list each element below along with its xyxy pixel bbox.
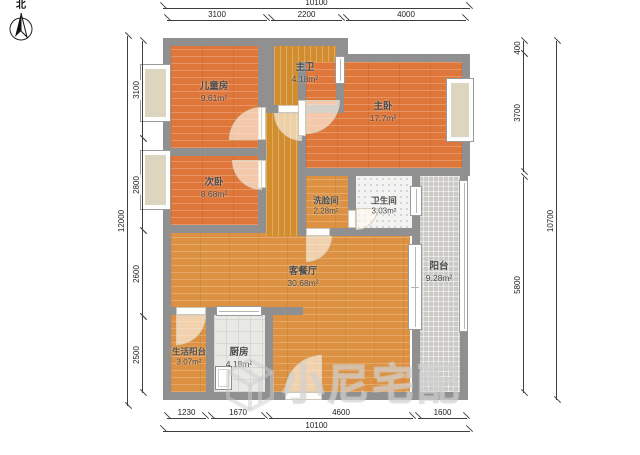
room-balcony[interactable] xyxy=(418,176,460,392)
floorplan-canvas: 北 xyxy=(0,0,640,455)
compass-icon xyxy=(7,11,35,43)
wall-segment xyxy=(266,105,278,113)
north-indicator: 北 xyxy=(6,1,36,48)
wall-segment xyxy=(298,62,306,100)
dim-top-seg: 4000 xyxy=(346,20,466,21)
wall-segment xyxy=(298,168,470,176)
wall-segment xyxy=(163,225,266,233)
wall-segment xyxy=(340,54,470,62)
window-second-bedroom-left xyxy=(140,150,171,210)
door-bathroom xyxy=(348,210,356,228)
dim-left-seg: 2600 xyxy=(142,231,143,317)
wall-segment xyxy=(322,392,468,400)
dim-top-seg: 2200 xyxy=(271,20,342,21)
window-master-bath xyxy=(335,56,345,84)
door-master-bedroom xyxy=(298,100,306,136)
kitchen-stove-fixture xyxy=(215,366,232,390)
dim-bottom-seg: 4600 xyxy=(269,418,413,419)
window-balcony-right xyxy=(459,180,468,332)
window-bathroom xyxy=(410,186,422,216)
dim-left-seg: 3100 xyxy=(142,41,143,139)
wall-segment xyxy=(163,38,348,46)
wall-segment xyxy=(206,315,214,392)
door-service-balcony xyxy=(176,307,206,315)
window-children-left xyxy=(140,64,171,122)
wall-segment xyxy=(348,176,356,210)
north-label: 北 xyxy=(6,1,36,11)
wall-segment xyxy=(298,176,306,236)
wall-segment xyxy=(266,46,274,113)
dim-bottom-total: 10100 xyxy=(163,431,470,432)
dim-top-seg: 3100 xyxy=(167,20,267,21)
door-washroom xyxy=(306,228,330,236)
dim-right-total: 10700 xyxy=(556,41,557,400)
dim-right-seg: 3700 xyxy=(523,54,524,172)
wall-segment xyxy=(265,307,273,392)
wall-segment xyxy=(163,148,266,156)
dim-bottom-seg: 1230 xyxy=(167,418,206,419)
dim-bottom-seg: 1600 xyxy=(418,418,467,419)
door-entry xyxy=(285,392,322,400)
wall-segment xyxy=(163,392,285,400)
slider-living-balcony xyxy=(408,244,422,330)
slider-kitchen xyxy=(216,306,262,316)
dim-right-seg: 5800 xyxy=(523,177,524,393)
wall-segment xyxy=(163,307,176,315)
dim-top-total: 10100 xyxy=(163,8,470,9)
wall-segment xyxy=(330,228,420,236)
dim-left-total: 12000 xyxy=(127,36,128,406)
dim-left-seg: 2800 xyxy=(142,139,143,231)
wall-segment xyxy=(258,46,266,107)
dim-bottom-seg: 1670 xyxy=(211,418,265,419)
window-master-bedroom-right xyxy=(446,78,474,142)
room-washroom[interactable] xyxy=(306,176,348,236)
dim-left-seg: 2500 xyxy=(142,317,143,393)
